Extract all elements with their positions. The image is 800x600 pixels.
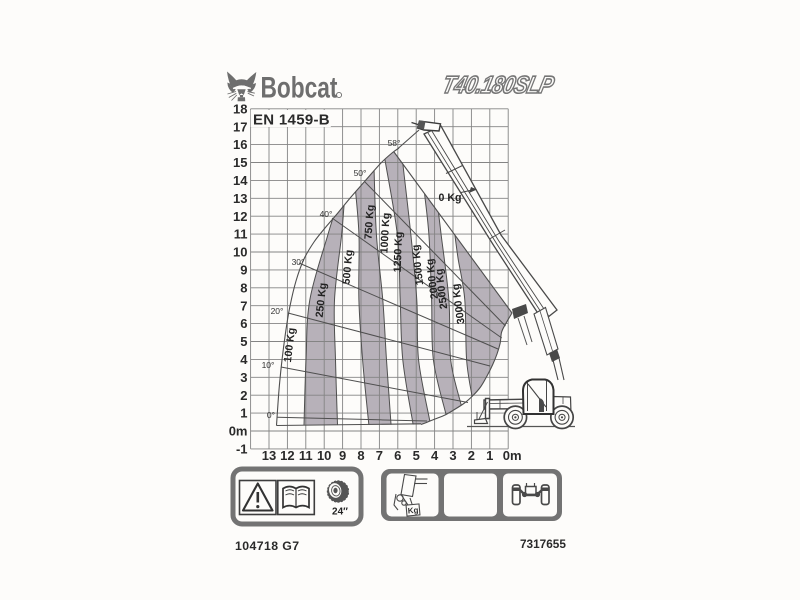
svg-text:1000 Kg: 1000 Kg [378, 212, 392, 253]
svg-text:10: 10 [317, 448, 331, 463]
svg-text:7: 7 [240, 298, 247, 313]
svg-text:5: 5 [413, 448, 420, 463]
svg-text:4: 4 [240, 352, 248, 367]
svg-text:20°: 20° [271, 306, 284, 316]
svg-text:15: 15 [233, 155, 247, 170]
svg-text:EN 1459-B: EN 1459-B [253, 112, 330, 129]
svg-text:30°: 30° [292, 257, 305, 267]
svg-text:Bobcat: Bobcat [261, 72, 338, 105]
svg-text:12: 12 [280, 448, 294, 463]
svg-text:-1: -1 [236, 442, 248, 457]
svg-text:16: 16 [233, 137, 247, 152]
svg-text:Kg: Kg [407, 506, 419, 516]
svg-text:13: 13 [262, 448, 276, 463]
svg-text:4: 4 [431, 448, 439, 463]
svg-text:6: 6 [394, 448, 401, 463]
svg-text:3: 3 [240, 370, 247, 385]
svg-text:1: 1 [240, 406, 247, 421]
svg-text:13: 13 [233, 191, 247, 206]
svg-text:12: 12 [233, 209, 247, 224]
svg-text:24″: 24″ [332, 507, 348, 518]
svg-text:58°: 58° [388, 138, 401, 148]
svg-text:104718 G7: 104718 G7 [235, 539, 299, 553]
svg-text:10°: 10° [262, 360, 275, 370]
svg-text:1250 Kg: 1250 Kg [392, 232, 405, 273]
svg-text:9: 9 [240, 263, 247, 278]
svg-text:8: 8 [240, 280, 247, 295]
svg-text:5: 5 [240, 334, 247, 349]
svg-text:1: 1 [486, 448, 493, 463]
svg-text:10: 10 [233, 245, 247, 260]
svg-text:14: 14 [233, 173, 248, 188]
svg-text:0m: 0m [503, 448, 522, 463]
svg-text:8: 8 [357, 448, 364, 463]
svg-text:750 Kg: 750 Kg [363, 204, 377, 240]
svg-text:0°: 0° [267, 410, 275, 420]
svg-text:7: 7 [376, 448, 383, 463]
svg-text:17: 17 [233, 119, 247, 134]
svg-text:0 Kg: 0 Kg [439, 192, 462, 204]
svg-text:6: 6 [240, 316, 247, 331]
svg-text:40°: 40° [320, 209, 333, 219]
svg-text:7317655: 7317655 [520, 537, 566, 551]
svg-text:11: 11 [234, 227, 248, 242]
svg-text:T40.180SLP: T40.180SLP [440, 72, 557, 99]
svg-text:2: 2 [468, 448, 475, 463]
svg-text:2: 2 [240, 388, 247, 403]
svg-text:9: 9 [339, 448, 346, 463]
svg-text:11: 11 [299, 448, 313, 463]
svg-text:3: 3 [449, 448, 456, 463]
svg-text:50°: 50° [354, 168, 367, 178]
svg-text:0m: 0m [229, 424, 248, 439]
svg-text:18: 18 [233, 101, 247, 116]
